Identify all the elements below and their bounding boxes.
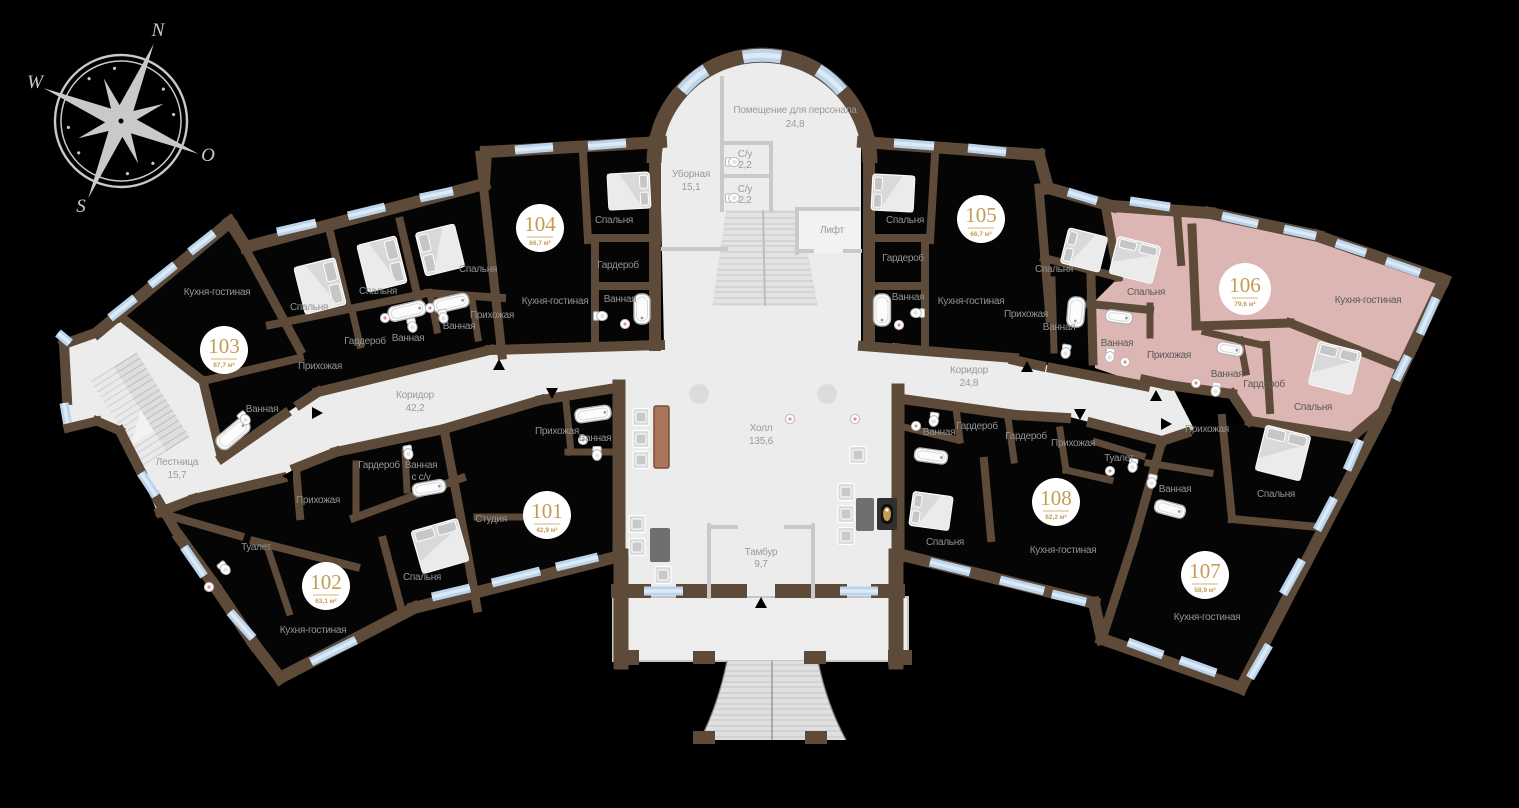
svg-text:Гардероб: Гардероб — [1243, 378, 1285, 390]
svg-text:Ванная: Ванная — [892, 292, 924, 303]
svg-text:Спальня: Спальня — [595, 215, 633, 226]
svg-text:N: N — [151, 20, 166, 41]
svg-text:104: 104 — [524, 212, 556, 236]
svg-text:Уборная: Уборная — [672, 168, 710, 180]
svg-text:Прихожая: Прихожая — [1147, 350, 1191, 361]
svg-text:Прихожая: Прихожая — [535, 426, 579, 437]
svg-text:108: 108 — [1040, 486, 1072, 510]
svg-text:Прихожая: Прихожая — [1185, 424, 1229, 435]
svg-text:Ванная: Ванная — [604, 294, 636, 305]
svg-text:С/у: С/у — [738, 184, 753, 195]
svg-text:Ванная: Ванная — [1101, 338, 1133, 349]
svg-text:Кухня-гостиная: Кухня-гостиная — [280, 625, 347, 636]
svg-text:106: 106 — [1229, 273, 1261, 297]
svg-text:79,6 м²: 79,6 м² — [1234, 301, 1256, 308]
svg-text:Спальня: Спальня — [459, 264, 497, 275]
svg-text:62,2 м²: 62,2 м² — [1045, 514, 1067, 521]
svg-text:Прихожая: Прихожая — [298, 361, 342, 372]
svg-text:Лестница: Лестница — [156, 457, 199, 468]
svg-text:с с/у: с с/у — [411, 472, 430, 483]
svg-text:Ванная: Ванная — [1211, 369, 1243, 380]
svg-text:24,8: 24,8 — [786, 119, 805, 130]
svg-text:Прихожая: Прихожая — [1004, 309, 1048, 320]
svg-text:Спальня: Спальня — [926, 537, 964, 548]
svg-text:2,2: 2,2 — [738, 160, 752, 171]
svg-text:Коридор: Коридор — [950, 365, 989, 376]
svg-text:Кухня-гостиная: Кухня-гостиная — [1335, 295, 1402, 306]
svg-text:Туалет: Туалет — [241, 542, 272, 553]
svg-text:Спальня: Спальня — [403, 572, 441, 583]
svg-text:Гардероб: Гардероб — [882, 252, 924, 264]
svg-text:2,2: 2,2 — [738, 195, 752, 206]
svg-text:107: 107 — [1189, 559, 1221, 583]
svg-text:Спальня: Спальня — [359, 286, 397, 297]
svg-text:24,8: 24,8 — [960, 378, 979, 389]
svg-text:42,2: 42,2 — [406, 403, 425, 414]
svg-text:Помещение для персонала: Помещение для персонала — [733, 105, 857, 116]
svg-text:66,7 м²: 66,7 м² — [529, 240, 551, 247]
svg-text:Спальня: Спальня — [1257, 489, 1295, 500]
svg-text:Кухня-гостиная: Кухня-гостиная — [184, 287, 251, 298]
svg-text:Спальня: Спальня — [1035, 264, 1073, 275]
svg-text:Кухня-гостиная: Кухня-гостиная — [1030, 545, 1097, 556]
svg-text:42,9 м²: 42,9 м² — [536, 527, 558, 534]
svg-text:105: 105 — [965, 203, 997, 227]
svg-text:Спальня: Спальня — [886, 215, 924, 226]
svg-text:63,1 м²: 63,1 м² — [315, 598, 337, 605]
svg-text:Ванная: Ванная — [923, 427, 955, 438]
svg-text:Студия: Студия — [475, 514, 507, 525]
svg-text:58,9 м²: 58,9 м² — [1194, 587, 1216, 594]
svg-text:Кухня-гостиная: Кухня-гостиная — [522, 296, 589, 307]
svg-text:9,7: 9,7 — [754, 559, 768, 570]
svg-text:Ванная: Ванная — [1043, 322, 1075, 333]
svg-text:15,7: 15,7 — [168, 470, 187, 481]
svg-text:Гардероб: Гардероб — [344, 335, 386, 347]
svg-text:101: 101 — [531, 499, 563, 523]
svg-text:Прихожая: Прихожая — [1051, 438, 1095, 449]
svg-text:66,7 м²: 66,7 м² — [970, 231, 992, 238]
svg-text:Ванная: Ванная — [392, 333, 424, 344]
svg-text:103: 103 — [208, 334, 240, 358]
svg-text:Прихожая: Прихожая — [296, 495, 340, 506]
svg-text:Гардероб: Гардероб — [956, 420, 998, 432]
svg-text:Туалет: Туалет — [1104, 453, 1135, 464]
svg-text:Спальня: Спальня — [1127, 287, 1165, 298]
svg-text:Гардероб: Гардероб — [358, 459, 400, 471]
svg-text:Ванная: Ванная — [405, 460, 437, 471]
svg-text:67,7 м²: 67,7 м² — [213, 362, 235, 369]
svg-text:Коридор: Коридор — [396, 390, 435, 401]
svg-text:Гардероб: Гардероб — [1005, 430, 1047, 442]
svg-text:Кухня-гостиная: Кухня-гостиная — [938, 296, 1005, 307]
svg-text:Лифт: Лифт — [820, 224, 845, 236]
svg-text:Ванная: Ванная — [246, 404, 278, 415]
svg-text:W: W — [27, 72, 45, 93]
svg-text:Спальня: Спальня — [290, 302, 328, 313]
svg-text:Тамбур: Тамбур — [745, 546, 778, 558]
svg-text:Гардероб: Гардероб — [597, 259, 639, 271]
svg-text:С/у: С/у — [738, 149, 753, 160]
svg-text:Кухня-гостиная: Кухня-гостиная — [1174, 612, 1241, 623]
svg-text:S: S — [76, 196, 86, 217]
svg-text:Ванная: Ванная — [1159, 484, 1191, 495]
svg-text:Ванная: Ванная — [443, 321, 475, 332]
svg-text:Холл: Холл — [750, 423, 773, 434]
svg-text:102: 102 — [310, 570, 342, 594]
svg-text:15,1: 15,1 — [682, 182, 701, 193]
svg-text:Спальня: Спальня — [1294, 402, 1332, 413]
svg-text:Прихожая: Прихожая — [470, 310, 514, 321]
svg-text:Ванная: Ванная — [579, 433, 611, 444]
svg-text:135,6: 135,6 — [749, 436, 774, 447]
svg-text:O: O — [201, 145, 215, 166]
